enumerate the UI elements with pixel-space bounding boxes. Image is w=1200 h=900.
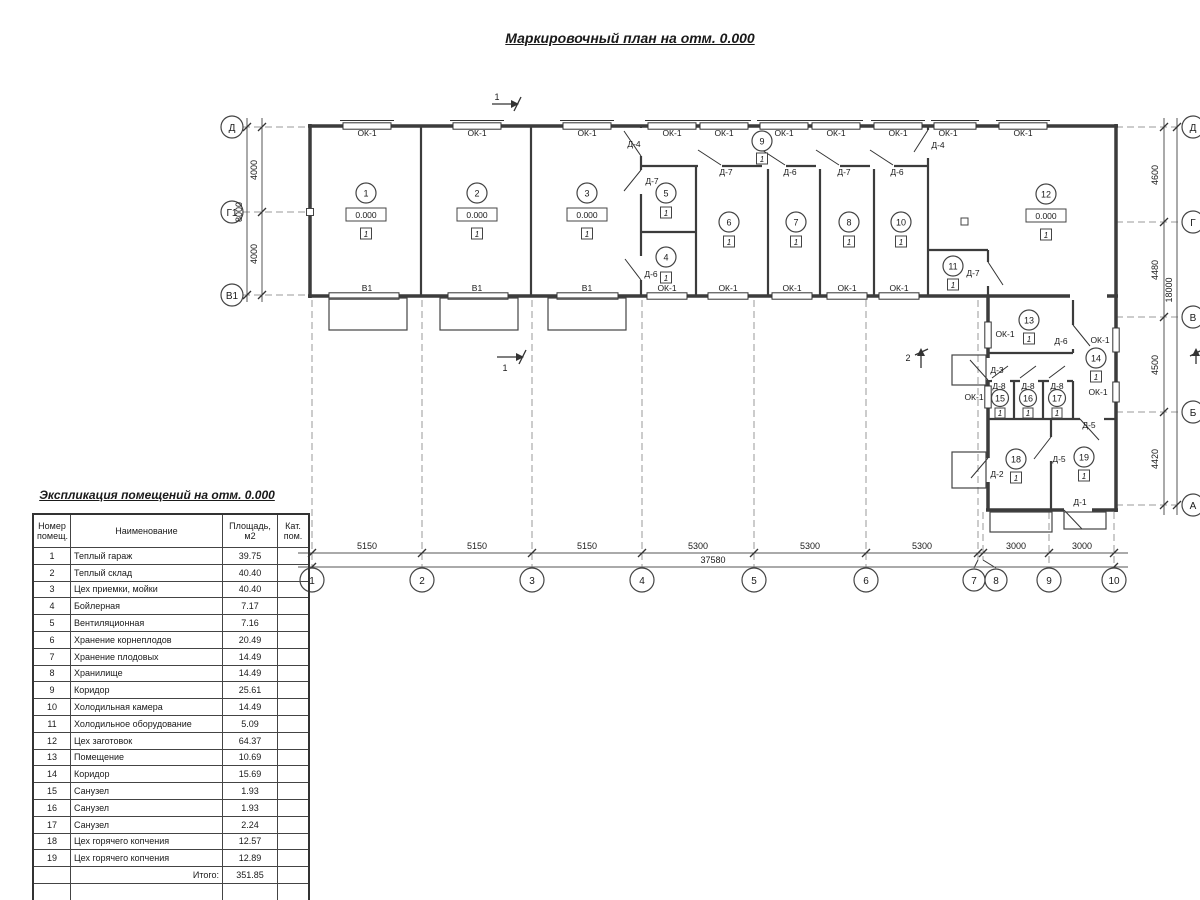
column-marker	[961, 218, 968, 225]
room-area: 14.49	[223, 665, 278, 682]
svg-text:8: 8	[846, 218, 851, 228]
room-marker-17: 17 1	[1049, 390, 1066, 419]
svg-text:5: 5	[663, 189, 668, 199]
room-number: 5	[33, 615, 71, 632]
room-area: 14.49	[223, 648, 278, 665]
door-label-d7: Д-7	[645, 176, 659, 186]
door-label-d1: Д-1	[1073, 497, 1087, 507]
room-number: 16	[33, 799, 71, 816]
schedule-row: 17 Санузел 2.24	[33, 816, 309, 833]
schedule-row: 16 Санузел 1.93	[33, 799, 309, 816]
elevation-mark: 0.000	[1035, 211, 1057, 221]
door-label-d4: Д-4	[931, 140, 945, 150]
door-label-d6: Д-6	[644, 269, 658, 279]
dim-8-9: 3000	[1006, 541, 1026, 551]
door-label-d3: Д-3	[990, 365, 1004, 375]
room-name: Хранилище	[71, 665, 223, 682]
room-category	[278, 665, 310, 682]
svg-text:11: 11	[948, 262, 957, 272]
room-marker-16: 16 1	[1020, 390, 1037, 419]
axis-bubble-A: А	[1190, 501, 1197, 512]
dim-9-10: 3000	[1072, 541, 1092, 551]
room-area: 1.93	[223, 799, 278, 816]
section-mark-2: 2	[905, 353, 910, 363]
gate-label: В1	[362, 283, 373, 293]
window-labels: ОК-1 ОК-1 ОК-1 ОК-1 ОК-1 ОК-1 ОК-1 ОК-1 …	[357, 128, 1109, 402]
schedule-row: 6 Хранение корнеплодов 20.49	[33, 631, 309, 648]
schedule-empty-row	[33, 883, 309, 900]
floor-type-mark: 1	[475, 230, 479, 239]
room-marker-3: 3 0.000 1	[567, 183, 607, 239]
schedule-row: 13 Помещение 10.69	[33, 749, 309, 766]
room-category	[278, 816, 310, 833]
axis-bubbles-bottom: 1 2 3 4 5 6 7 8 9 10	[300, 568, 1126, 592]
room-area: 40.40	[223, 564, 278, 581]
room-name: Хранение плодовых	[71, 648, 223, 665]
dim-D-G1: 4000	[249, 160, 259, 180]
svg-text:14: 14	[1091, 354, 1101, 364]
schedule-row: 2 Теплый склад 40.40	[33, 564, 309, 581]
room-area: 40.40	[223, 581, 278, 598]
schedule-header-row: Номер помещ. Наименование Площадь, м2 Ка…	[33, 514, 309, 548]
floor-type-mark: 1	[585, 230, 589, 239]
dim-bottom-total: 37580	[700, 555, 725, 565]
room-category	[278, 564, 310, 581]
pier-marker	[307, 209, 314, 216]
room-marker-12: 12 0.000 1	[1026, 184, 1066, 240]
dim-5-6: 5300	[800, 541, 820, 551]
room-marker-14: 14 1	[1086, 348, 1106, 382]
section-mark-1-bottom: 1	[502, 363, 507, 373]
room-name: Коридор	[71, 766, 223, 783]
schedule-row: 1 Теплый гараж 39.75	[33, 548, 309, 565]
dim-left-total: 8000	[234, 202, 244, 222]
schedule-row: 7 Хранение плодовых 14.49	[33, 648, 309, 665]
room-category	[278, 749, 310, 766]
room-category	[278, 783, 310, 800]
room-marker-9: 9 1	[752, 131, 772, 164]
room-area: 1.93	[223, 783, 278, 800]
schedule-row: 19 Цех горячего копчения 12.89	[33, 850, 309, 867]
room-schedule-table: Номер помещ. Наименование Площадь, м2 Ка…	[32, 513, 310, 900]
room-area: 12.89	[223, 850, 278, 867]
room-number: 4	[33, 598, 71, 615]
window-label: ОК-1	[714, 128, 733, 138]
room-area: 14.49	[223, 699, 278, 716]
axis-bubble-5: 5	[751, 576, 757, 587]
room-number: 15	[33, 783, 71, 800]
room-number: 3	[33, 581, 71, 598]
elevation-mark: 0.000	[576, 210, 598, 220]
room-number: 14	[33, 766, 71, 783]
door-label-d7: Д-7	[837, 167, 851, 177]
room-name: Санузел	[71, 799, 223, 816]
svg-text:1: 1	[1027, 335, 1031, 344]
axis-bubble-8: 8	[993, 576, 999, 587]
room-category	[278, 682, 310, 699]
dim-right-total: 18000	[1164, 277, 1174, 302]
window-label: ОК-1	[467, 128, 486, 138]
axis-bubble-4: 4	[639, 576, 645, 587]
schedule-row: 12 Цех заготовок 64.37	[33, 732, 309, 749]
window-label: ОК-1	[837, 283, 856, 293]
window-label: ОК-1	[995, 329, 1014, 339]
svg-text:1: 1	[363, 189, 368, 199]
axis-bubble-B: Б	[1190, 408, 1197, 419]
room-category	[278, 598, 310, 615]
room-name: Теплый склад	[71, 564, 223, 581]
dim-D-G: 4600	[1150, 165, 1160, 185]
walls	[307, 124, 1119, 512]
schedule-row: 11 Холодильное оборудование 5.09	[33, 715, 309, 732]
door-label-d6: Д-6	[783, 167, 797, 177]
room-number: 18	[33, 833, 71, 850]
room-area: 7.17	[223, 598, 278, 615]
schedule-row: 8 Хранилище 14.49	[33, 665, 309, 682]
room-area: 20.49	[223, 631, 278, 648]
room-marker-18: 18 1	[1006, 449, 1026, 483]
window-label: ОК-1	[782, 283, 801, 293]
window-label: ОК-1	[718, 283, 737, 293]
schedule-header-num: Номер помещ.	[33, 514, 71, 548]
window-label: ОК-1	[357, 128, 376, 138]
svg-text:1: 1	[1014, 474, 1018, 483]
svg-text:13: 13	[1024, 316, 1034, 326]
axis-bubble-D-right: Д	[1190, 123, 1197, 134]
room-number: 2	[33, 564, 71, 581]
room-name: Холодильное оборудование	[71, 715, 223, 732]
door-label-d5: Д-5	[1052, 454, 1066, 464]
axis-bubble-V1: В1	[226, 291, 239, 302]
svg-text:7: 7	[793, 218, 798, 228]
room-category	[278, 631, 310, 648]
axis-bubble-V: В	[1190, 313, 1197, 324]
dim-B-A: 4420	[1150, 449, 1160, 469]
room-category	[278, 615, 310, 632]
window-label: ОК-1	[888, 128, 907, 138]
dim-1-2: 5150	[357, 541, 377, 551]
window-label: ОК-1	[774, 128, 793, 138]
room-area: 7.16	[223, 615, 278, 632]
axis-bubble-2: 2	[419, 576, 425, 587]
room-number: 8	[33, 665, 71, 682]
room-name: Санузел	[71, 783, 223, 800]
dim-G1-V1: 4000	[249, 244, 259, 264]
schedule-row: 10 Холодильная камера 14.49	[33, 699, 309, 716]
room-marker-2: 2 0.000 1	[457, 183, 497, 239]
room-area: 2.24	[223, 816, 278, 833]
room-number: 10	[33, 699, 71, 716]
room-name: Цех горячего копчения	[71, 850, 223, 867]
section-marks: 1 1 2	[492, 92, 1200, 373]
axis-bubble-9: 9	[1046, 576, 1052, 587]
room-number: 17	[33, 816, 71, 833]
dim-4-5: 5300	[688, 541, 708, 551]
room-category	[278, 699, 310, 716]
axis-bubbles-right: Д Г В Б А	[1182, 116, 1200, 516]
room-marker-10: 10 1	[891, 212, 911, 247]
svg-text:1: 1	[1082, 472, 1086, 481]
svg-text:18: 18	[1011, 455, 1021, 465]
window-label: ОК-1	[657, 283, 676, 293]
room-marker-15: 15 1	[992, 390, 1009, 419]
room-marker-7: 7 1	[786, 212, 806, 247]
window-label: ОК-1	[1088, 387, 1107, 397]
room-number: 7	[33, 648, 71, 665]
schedule-row: 3 Цех приемки, мойки 40.40	[33, 581, 309, 598]
room-area: 25.61	[223, 682, 278, 699]
room-name: Теплый гараж	[71, 548, 223, 565]
room-number: 12	[33, 732, 71, 749]
room-category	[278, 715, 310, 732]
room-category	[278, 548, 310, 565]
room-marker-6: 6 1	[719, 212, 739, 247]
room-marker-13: 13 1	[1019, 310, 1039, 344]
room-category	[278, 850, 310, 867]
room-number: 1	[33, 548, 71, 565]
axis-bubble-10: 10	[1108, 576, 1120, 587]
svg-text:1: 1	[1055, 409, 1059, 418]
floor-type-mark: 1	[1044, 231, 1048, 240]
svg-text:17: 17	[1052, 394, 1062, 404]
door-label-d7: Д-7	[966, 268, 980, 278]
room-category	[278, 799, 310, 816]
svg-text:1: 1	[899, 238, 903, 247]
svg-text:4: 4	[663, 253, 668, 263]
svg-text:1: 1	[727, 238, 731, 247]
window-label: ОК-1	[662, 128, 681, 138]
svg-text:1: 1	[794, 238, 798, 247]
axis-bubble-D-left: Д	[229, 123, 236, 134]
gate-label: В1	[472, 283, 483, 293]
room-name: Бойлерная	[71, 598, 223, 615]
axis-bubble-3: 3	[529, 576, 535, 587]
dim-G-V: 4480	[1150, 260, 1160, 280]
room-number: 13	[33, 749, 71, 766]
room-area: 5.09	[223, 715, 278, 732]
door-label-d4: Д-4	[627, 139, 641, 149]
door-label-d6: Д-6	[1054, 336, 1068, 346]
room-number: 11	[33, 715, 71, 732]
dim-V-B: 4500	[1150, 355, 1160, 375]
window-label: ОК-1	[964, 392, 983, 402]
room-marker-5: 5 1	[656, 183, 676, 218]
dim-2-3: 5150	[467, 541, 487, 551]
svg-text:1: 1	[1094, 373, 1098, 382]
room-marker-8: 8 1	[839, 212, 859, 247]
room-marker-19: 19 1	[1074, 447, 1094, 481]
room-name: Цех горячего копчения	[71, 833, 223, 850]
elevation-mark: 0.000	[466, 210, 488, 220]
schedule-row: 14 Коридор 15.69	[33, 766, 309, 783]
svg-text:1: 1	[760, 155, 764, 164]
svg-text:10: 10	[896, 218, 906, 228]
axis-bubble-1: 1	[309, 576, 315, 587]
room-category	[278, 766, 310, 783]
door-label-d2: Д-2	[990, 469, 1004, 479]
axis-bubble-6: 6	[863, 576, 869, 587]
room-area: 15.69	[223, 766, 278, 783]
room-area: 12.57	[223, 833, 278, 850]
room-number: 6	[33, 631, 71, 648]
svg-text:1: 1	[998, 409, 1002, 418]
room-marker-11: 11 1	[943, 256, 963, 290]
svg-text:1: 1	[664, 274, 668, 283]
window-label: ОК-1	[938, 128, 957, 138]
room-name: Вентиляционная	[71, 615, 223, 632]
schedule-header-name: Наименование	[71, 514, 223, 548]
room-category	[278, 581, 310, 598]
room-category	[278, 833, 310, 850]
schedule-total-row: Итого: 351.85	[33, 867, 309, 884]
svg-text:12: 12	[1041, 190, 1051, 200]
schedule-row: 4 Бойлерная 7.17	[33, 598, 309, 615]
section-mark-1-top: 1	[494, 92, 499, 102]
svg-text:1: 1	[951, 281, 955, 290]
room-name: Цех заготовок	[71, 732, 223, 749]
window-label: ОК-1	[577, 128, 596, 138]
room-name: Цех приемки, мойки	[71, 581, 223, 598]
window-label: ОК-1	[826, 128, 845, 138]
svg-text:3: 3	[584, 189, 589, 199]
room-marker-4: 4 1	[656, 247, 676, 283]
schedule-row: 5 Вентиляционная 7.16	[33, 615, 309, 632]
svg-text:1: 1	[1026, 409, 1030, 418]
door-label-d6: Д-6	[890, 167, 904, 177]
schedule-header-cat: Кат. пом.	[278, 514, 310, 548]
room-category	[278, 732, 310, 749]
svg-text:19: 19	[1079, 453, 1089, 463]
schedule-row: 18 Цех горячего копчения 12.57	[33, 833, 309, 850]
room-number: 9	[33, 682, 71, 699]
drawing-sheet: Маркировочный план на отм. 0.000	[0, 0, 1200, 900]
schedule-title: Экспликация помещений на отм. 0.000	[32, 488, 282, 502]
svg-text:1: 1	[664, 209, 668, 218]
dim-3-4: 5150	[577, 541, 597, 551]
schedule-header-area: Площадь, м2	[223, 514, 278, 548]
dim-6-7: 5300	[912, 541, 932, 551]
total-area: 351.85	[223, 867, 278, 884]
room-marker-1: 1 0.000 1	[346, 183, 386, 239]
schedule-row: 9 Коридор 25.61	[33, 682, 309, 699]
elevation-mark: 0.000	[355, 210, 377, 220]
window-label: ОК-1	[889, 283, 908, 293]
svg-text:15: 15	[995, 394, 1005, 404]
room-name: Хранение корнеплодов	[71, 631, 223, 648]
room-name: Холодильная камера	[71, 699, 223, 716]
window-label: ОК-1	[1013, 128, 1032, 138]
door-label-d5: Д-5	[1082, 420, 1096, 430]
room-name: Помещение	[71, 749, 223, 766]
floor-type-mark: 1	[364, 230, 368, 239]
window-label: ОК-1	[1090, 335, 1109, 345]
room-category	[278, 648, 310, 665]
room-area: 10.69	[223, 749, 278, 766]
svg-text:9: 9	[759, 137, 764, 147]
gate-label: В1	[582, 283, 593, 293]
svg-text:6: 6	[726, 218, 731, 228]
axis-bubble-G: Г	[1190, 218, 1196, 229]
svg-text:16: 16	[1023, 394, 1033, 404]
room-name: Санузел	[71, 816, 223, 833]
svg-text:2: 2	[474, 189, 479, 199]
room-area: 64.37	[223, 732, 278, 749]
svg-text:1: 1	[847, 238, 851, 247]
room-number: 19	[33, 850, 71, 867]
room-name: Коридор	[71, 682, 223, 699]
door-label-d7: Д-7	[719, 167, 733, 177]
total-label: Итого:	[71, 867, 223, 884]
schedule-row: 15 Санузел 1.93	[33, 783, 309, 800]
room-area: 39.75	[223, 548, 278, 565]
room-markers: 1 0.000 1 2 0.000 1 3 0.000 1 12 0.000 1…	[346, 131, 1106, 483]
axis-bubble-7: 7	[971, 576, 977, 587]
